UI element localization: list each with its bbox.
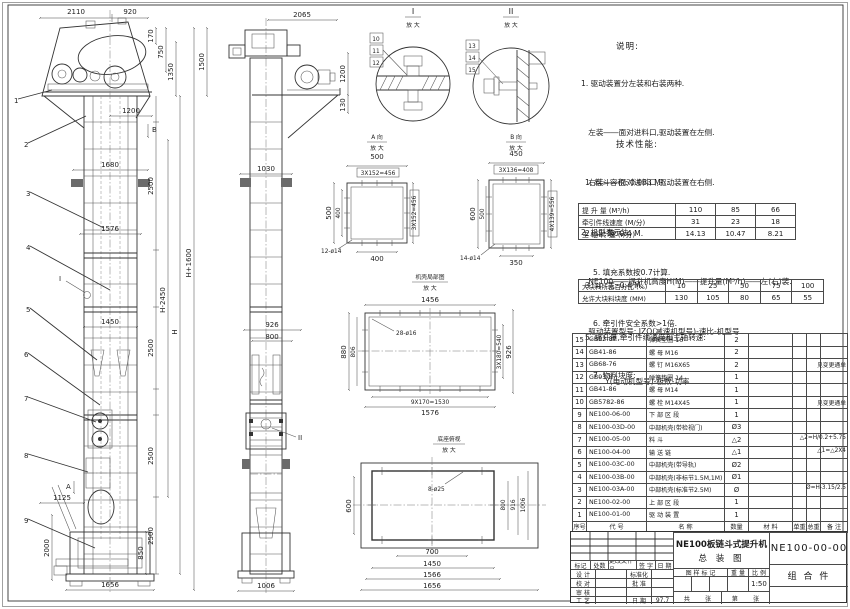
bom-item-unit-weight xyxy=(793,446,807,459)
product-name: NE100板链斗式提升机 xyxy=(676,538,767,550)
side-elevation-view: II 2065 1200 130 1030 926 800 1006 xyxy=(229,11,348,595)
callout-6: 6 xyxy=(24,351,29,359)
view-b-dim-350: 350 xyxy=(509,259,522,267)
bom-item-material xyxy=(749,359,793,372)
base-plan-view: 底座俯视 放 大 8-ø25 600 800 916 1006 700 1450… xyxy=(345,435,546,590)
dim-130: 130 xyxy=(339,98,347,111)
scale-value: 1:50 xyxy=(748,576,769,591)
view-a-enlarged: A 向 放 大 500 3X152=456 500 400 400 3X152=… xyxy=(321,133,419,263)
lump-size-row: 大块料所占百分比 (%) 10 25 50 75 100 xyxy=(579,280,824,292)
bom-item-unit-weight xyxy=(793,484,807,497)
bom-item-qty: 1 xyxy=(725,496,749,509)
bom-item-material xyxy=(749,396,793,409)
capacity-table-row: 牵引件线速度 (M/分) 31 23 18 xyxy=(579,216,796,228)
view-b-enlarged: B 向 放 大 450 3X136=408 600 500 350 4X139=… xyxy=(460,133,557,267)
marker-i-front: I xyxy=(59,275,61,283)
bom-item-code: NE100-03D-00 xyxy=(587,421,647,434)
sig-approve-value xyxy=(651,578,673,587)
bom-item-name: 上 部 区 段 xyxy=(647,496,725,509)
capacity-value-3: 18 xyxy=(756,216,796,228)
bom-item-unit-weight xyxy=(793,334,807,347)
bom-item-code: NE100-05-00 xyxy=(587,434,647,447)
callout-12: 12 xyxy=(372,61,380,67)
lump-value-1: 130 xyxy=(666,292,698,304)
title-block-empty-cell xyxy=(769,586,848,604)
marker-a: A xyxy=(66,483,71,491)
bom-item-qty: 2 xyxy=(725,346,749,359)
lump-value-2: 25 xyxy=(697,280,729,292)
casing-dim-9x170: 9X170=1530 xyxy=(411,400,450,406)
parts-list-row: 11 GB41-86 螺 母 M14 1 xyxy=(573,384,848,397)
callout-7: 7 xyxy=(24,395,28,403)
view-b-dim-4x139: 4X139=556 xyxy=(550,196,556,231)
capacity-value-2: 10.47 xyxy=(716,228,756,240)
dim-2065: 2065 xyxy=(293,11,311,19)
bom-item-unit-weight xyxy=(793,459,807,472)
bom-item-no: 11 xyxy=(573,384,587,397)
bom-item-name: 中部机壳(标准节2.5M) xyxy=(647,484,725,497)
parts-list-row: 13 GB68-76 螺 钉 M16X65 2 见变更通单 xyxy=(573,359,848,372)
sig-standard-value xyxy=(651,569,673,578)
capacity-row-label: 主 轴 转 速 (r/分) xyxy=(579,228,676,240)
sig-audit-label: 审 核 xyxy=(571,587,595,596)
base-view-title: 底座俯视 xyxy=(437,435,460,443)
bom-item-unit-weight xyxy=(793,384,807,397)
capacity-table-row: 主 轴 转 速 (r/分) 14.13 10.47 8.21 xyxy=(579,228,796,240)
revision-rows xyxy=(571,532,673,560)
weight-value xyxy=(727,576,748,591)
revision-grid-lines xyxy=(571,532,673,560)
sheet-total: 共 张 xyxy=(673,591,721,604)
capacity-table-row: 提 升 量 (M³/h) 110 85 66 xyxy=(579,204,796,216)
dim-926-side: 926 xyxy=(265,321,279,329)
bom-item-name: 螺 母 M16 xyxy=(647,346,725,359)
bom-item-code: NE100-06-00 xyxy=(587,409,647,422)
dim-1680: 1680 xyxy=(101,161,119,169)
bom-item-qty: 2 xyxy=(725,334,749,347)
bom-item-no: 14 xyxy=(573,346,587,359)
scale-label: 比 例 xyxy=(748,568,769,576)
bom-item-code: GB93-87 xyxy=(587,371,647,384)
bom-item-qty: △2 xyxy=(725,434,749,447)
bom-item-remark: Ø=H-3.15/2.5 xyxy=(821,484,848,497)
bom-item-total-weight xyxy=(807,384,821,397)
bom-item-unit-weight xyxy=(793,471,807,484)
detail-view-ii: II 放 大 13 14 15 xyxy=(466,7,549,124)
casing-dim-3x180: 3X180=540 xyxy=(497,334,503,369)
sig-check-value xyxy=(595,578,626,587)
bom-item-total-weight xyxy=(807,509,821,522)
base-dim-700: 700 xyxy=(425,548,438,556)
bom-item-qty: Ø xyxy=(725,484,749,497)
parts-list-row: 6 NE100-04-00 输 送 链 △1 △1=△2X4 xyxy=(573,446,848,459)
drawing-title-panel: NE100板链斗式提升机 总 装 图 xyxy=(673,532,769,568)
base-view-subtitle: 放 大 xyxy=(442,446,456,454)
casing-partial-view: 机壳局部图 放 大 1456 880 806 3X180=540 926 9X1… xyxy=(340,273,513,417)
sig-approve-label: 批 准 xyxy=(626,578,651,587)
parts-list-row: 14 GB41-86 螺 母 M16 2 xyxy=(573,346,848,359)
bom-item-no: 9 xyxy=(573,409,587,422)
view-a-dim-3x152-right: 3X152=456 xyxy=(412,195,418,230)
sig-audit-b xyxy=(626,587,651,596)
bom-item-material xyxy=(749,434,793,447)
bom-item-unit-weight xyxy=(793,396,807,409)
callout-3: 3 xyxy=(26,190,30,198)
dim-1656: 1656 xyxy=(101,581,119,589)
view-a-dim-400-bottom: 400 xyxy=(370,255,383,263)
parts-list-row: 4 NE100-03B-00 中部机壳(非标节1.5M,1M) Ø1 xyxy=(573,471,848,484)
bom-item-qty: Ø2 xyxy=(725,459,749,472)
sig-audit-value xyxy=(595,587,626,596)
bom-item-no: 1 xyxy=(573,509,587,522)
bom-item-no: 7 xyxy=(573,434,587,447)
capacity-table-body: 提 升 量 (M³/h) 110 85 66 牵引件线速度 (M/分) 31 2… xyxy=(579,204,796,240)
lump-size-table-body: 大块料所占百分比 (%) 10 25 50 75 100 允许大块料块度 (MM… xyxy=(579,280,824,304)
bom-item-name: 螺 钉 M16X65 xyxy=(647,359,725,372)
casing-holes-label: 28-ø16 xyxy=(396,331,417,337)
bom-item-code: NE100-03C-00 xyxy=(587,459,647,472)
view-a-holes-label: 12-ø14 xyxy=(321,249,342,255)
bom-item-qty: Ø1 xyxy=(725,471,749,484)
bom-item-no: 2 xyxy=(573,496,587,509)
stamp-box-2 xyxy=(691,576,709,591)
bom-item-remark xyxy=(821,459,848,472)
bom-item-name: 下 部 区 段 xyxy=(647,409,725,422)
view-b-holes-label: 14-ø14 xyxy=(460,256,481,262)
bom-item-no: 15 xyxy=(573,334,587,347)
parts-list-header: 序号 代 号 名 称 数量 材 料 单重 总重 备 注 xyxy=(573,521,848,531)
lump-value-3: 50 xyxy=(729,280,761,292)
sheet-number: 第 张 xyxy=(721,591,769,604)
bom-item-total-weight xyxy=(807,471,821,484)
bom-header-remark: 备 注 xyxy=(821,521,848,531)
bom-item-total-weight xyxy=(807,459,821,472)
callout-5: 5 xyxy=(26,306,30,314)
bom-item-unit-weight xyxy=(793,371,807,384)
bom-item-name: 弹簧垫圈 14 xyxy=(647,371,725,384)
sig-date-value: 97.7 xyxy=(651,596,673,604)
bom-item-remark: △2=H/0.2+5.75 xyxy=(821,434,848,447)
sig-standard-label: 标准化 xyxy=(626,569,651,578)
capacity-row-label: 提 升 量 (M³/h) xyxy=(579,204,676,216)
view-b-dim-450: 450 xyxy=(509,150,522,158)
parts-list-row: 7 NE100-05-00 料 斗 △2 △2=H/0.2+5.75 xyxy=(573,434,848,447)
bom-item-qty: 1 xyxy=(725,384,749,397)
callout-2: 2 xyxy=(24,141,28,149)
dim-750: 750 xyxy=(157,45,165,58)
bom-header-no: 序号 xyxy=(573,521,587,531)
stamp-box-1 xyxy=(673,576,691,591)
bom-item-no: 6 xyxy=(573,446,587,459)
dim-2500: 2500 xyxy=(147,447,155,465)
dim-1125: 1125 xyxy=(53,494,71,502)
bom-item-no: 4 xyxy=(573,471,587,484)
view-a-dim-3x152: 3X152=456 xyxy=(361,171,396,177)
bom-item-qty: 1 xyxy=(725,396,749,409)
title-block: 标记 处数 更改文件号 签 字 日 期 设 计 标准化 校 对 批 准 审 核 … xyxy=(570,531,847,603)
bom-item-remark xyxy=(821,384,848,397)
bom-item-remark xyxy=(821,496,848,509)
dim-1450: 1450 xyxy=(101,318,119,326)
bom-item-qty: Ø3 xyxy=(725,421,749,434)
detail-ii-title: II xyxy=(509,7,514,16)
dim-1200-side: 1200 xyxy=(339,65,347,83)
parts-list-row: 2 NE100-02-00 上 部 区 段 1 xyxy=(573,496,848,509)
bom-item-remark: △1=△2X4 xyxy=(821,446,848,459)
view-a-title: A 向 xyxy=(371,133,383,141)
lump-value-5: 55 xyxy=(792,292,824,304)
parts-list-row: 3 NE100-03A-00 中部机壳(标准节2.5M) Ø Ø=H-3.15/… xyxy=(573,484,848,497)
bom-item-remark xyxy=(821,421,848,434)
lump-size-table: 大块料所占百分比 (%) 10 25 50 75 100 允许大块料块度 (MM… xyxy=(578,279,824,304)
bom-item-unit-weight xyxy=(793,496,807,509)
front-elevation-view: 2110 920 170 750 1350 1500 1200 B 1680 1… xyxy=(14,8,207,592)
lump-size-label: 大块料所占百分比 (%) xyxy=(579,280,666,292)
callout-13: 13 xyxy=(468,44,476,50)
bom-item-name: 中部机壳(非标节1.5M,1M) xyxy=(647,471,725,484)
casing-dim-1456: 1456 xyxy=(421,296,439,304)
notes-heading: 说明: xyxy=(616,40,639,52)
bom-item-no: 13 xyxy=(573,359,587,372)
callout-9: 9 xyxy=(24,517,28,525)
dim-2500: 2500 xyxy=(147,527,155,545)
base-dim-916: 916 xyxy=(511,499,517,510)
bom-item-code: GB5782-86 xyxy=(587,396,647,409)
dim-2500: 2500 xyxy=(147,177,155,195)
bom-item-name: 输 送 链 xyxy=(647,446,725,459)
bom-item-unit-weight xyxy=(793,359,807,372)
bom-item-code: GB41-86 xyxy=(587,384,647,397)
bom-header-unit-weight: 单重 xyxy=(793,521,807,531)
callout-10: 10 xyxy=(372,37,380,43)
bom-item-code: NE100-03B-00 xyxy=(587,471,647,484)
parts-list-row: 1 NE100-01-00 驱 动 装 置 1 xyxy=(573,509,848,522)
drawing-name: 总 装 图 xyxy=(698,552,744,564)
view-b-dim-600: 600 xyxy=(469,207,477,220)
bom-item-remark xyxy=(821,509,848,522)
lump-value-2: 105 xyxy=(697,292,729,304)
view-a-dim-500-left: 500 xyxy=(325,206,333,219)
base-dim-1656: 1656 xyxy=(423,582,441,590)
bom-item-qty: 2 xyxy=(725,359,749,372)
lump-value-5: 100 xyxy=(792,280,824,292)
bom-item-name: 弹簧垫圈 16 xyxy=(647,334,725,347)
bom-item-name: 中部机壳(带检视门) xyxy=(647,421,725,434)
detail-ii-subtitle: 放 大 xyxy=(504,21,518,29)
parts-list-table: 15 GB93-87 弹簧垫圈 16 2 14 GB41-86 螺 母 M16 … xyxy=(572,333,848,532)
dim-1200-front: 1200 xyxy=(122,107,140,115)
bom-item-material xyxy=(749,384,793,397)
bom-item-unit-weight xyxy=(793,421,807,434)
bom-item-total-weight xyxy=(807,346,821,359)
lump-size-label: 允许大块料块度 (MM) xyxy=(579,292,666,304)
sig-check-label: 校 对 xyxy=(571,578,595,587)
base-dim-1566: 1566 xyxy=(423,571,441,579)
dim-800-side: 800 xyxy=(265,333,278,341)
bom-item-code: GB68-76 xyxy=(587,359,647,372)
bom-item-material xyxy=(749,484,793,497)
bom-item-remark: 见变更通单 xyxy=(821,359,848,372)
rev-col-doc: 更改文件号 xyxy=(608,560,636,569)
parts-list-row: 5 NE100-03C-00 中部机壳(带导轨) Ø2 xyxy=(573,459,848,472)
base-dim-1006: 1006 xyxy=(521,497,527,512)
bom-item-no: 8 xyxy=(573,421,587,434)
sig-audit-c xyxy=(651,587,673,596)
text-line: 1. 料斗容积: 0.033 M³. xyxy=(585,177,845,190)
parts-list-row: 9 NE100-06-00 下 部 区 段 1 xyxy=(573,409,848,422)
bom-item-no: 5 xyxy=(573,459,587,472)
dim-1030: 1030 xyxy=(257,165,275,173)
base-dim-1450: 1450 xyxy=(423,560,441,568)
bom-item-remark xyxy=(821,346,848,359)
callout-leaders xyxy=(18,90,110,548)
bom-item-name: 料 斗 xyxy=(647,434,725,447)
bom-item-material xyxy=(749,409,793,422)
capacity-value-2: 85 xyxy=(716,204,756,216)
casing-view-subtitle: 放 大 xyxy=(423,284,437,292)
weight-label: 重 量 xyxy=(727,568,748,576)
parts-list-row: 8 NE100-03D-00 中部机壳(带检视门) Ø3 xyxy=(573,421,848,434)
bom-item-total-weight xyxy=(807,421,821,434)
callout-1: 1 xyxy=(14,97,18,105)
lump-value-3: 80 xyxy=(729,292,761,304)
part-type: 组 合 件 xyxy=(769,564,848,586)
bom-item-unit-weight xyxy=(793,509,807,522)
bom-item-material xyxy=(749,334,793,347)
bom-item-no: 12 xyxy=(573,371,587,384)
text-line: 6. 牵引件安全系数>1倍. xyxy=(593,318,845,331)
dim-h-2450: H-2450 xyxy=(159,287,167,313)
view-b-dim-500: 500 xyxy=(480,208,486,219)
rev-col-mark: 标记 xyxy=(571,560,590,569)
bom-item-material xyxy=(749,421,793,434)
bom-item-code: NE100-01-00 xyxy=(587,509,647,522)
rev-col-count: 处数 xyxy=(590,560,608,569)
dim-1006: 1006 xyxy=(257,582,275,590)
callout-8: 8 xyxy=(24,452,28,460)
bom-item-total-weight xyxy=(807,409,821,422)
sig-design-value xyxy=(595,569,626,578)
drawing-number: NE100-00-00 xyxy=(769,532,848,564)
lump-value-4: 65 xyxy=(760,292,792,304)
callout-15: 15 xyxy=(468,68,476,74)
bom-item-material xyxy=(749,371,793,384)
bom-item-qty: 1 xyxy=(725,409,749,422)
dim-h-plus-1600: H+1600 xyxy=(185,249,193,278)
bom-item-material xyxy=(749,496,793,509)
text-line: 1. 驱动装置分左装和右装两种. xyxy=(581,78,845,90)
lump-value-1: 10 xyxy=(666,280,698,292)
callout-14: 14 xyxy=(468,56,476,62)
bom-header-total-weight: 总重 xyxy=(807,521,821,531)
detail-i-title: I xyxy=(412,7,414,16)
bom-item-qty: 1 xyxy=(725,509,749,522)
text-line: 5. 填充系数按0.7计算. xyxy=(593,267,845,280)
capacity-table: 提 升 量 (M³/h) 110 85 66 牵引件线速度 (M/分) 31 2… xyxy=(578,203,796,240)
base-dim-600: 600 xyxy=(345,499,353,512)
dim-2500: 2500 xyxy=(147,339,155,357)
bom-item-remark xyxy=(821,371,848,384)
bom-item-remark xyxy=(821,409,848,422)
bom-item-code: NE100-03A-00 xyxy=(587,484,647,497)
dim-920: 920 xyxy=(123,8,136,16)
sig-process-value xyxy=(595,596,626,604)
casing-view-title: 机壳局部图 xyxy=(416,273,445,281)
bom-header-code: 代 号 xyxy=(587,521,647,531)
capacity-value-1: 14.13 xyxy=(676,228,716,240)
bom-item-total-weight xyxy=(807,371,821,384)
dim-h: H xyxy=(171,329,179,334)
marker-ii-side: II xyxy=(298,434,302,442)
sig-date-label: 日 期 xyxy=(626,596,651,604)
bom-item-remark xyxy=(821,334,848,347)
bom-item-code: NE100-02-00 xyxy=(587,496,647,509)
bom-item-material xyxy=(749,346,793,359)
base-dim-800: 800 xyxy=(501,499,507,510)
parts-list-row: 15 GB93-87 弹簧垫圈 16 2 xyxy=(573,334,848,347)
capacity-row-label: 牵引件线速度 (M/分) xyxy=(579,216,676,228)
callout-4: 4 xyxy=(26,244,31,252)
bom-item-code: GB41-86 xyxy=(587,346,647,359)
engineering-drawing-sheet: 2110 920 170 750 1350 1500 1200 B 1680 1… xyxy=(0,0,850,609)
bom-item-qty: 1 xyxy=(725,371,749,384)
detail-i-subtitle: 放 大 xyxy=(406,21,420,29)
parts-list-row: 10 GB5782-86 螺 栓 M14X45 1 见变更通单 xyxy=(573,396,848,409)
bom-header-name: 名 称 xyxy=(647,521,725,531)
bom-item-name: 螺 栓 M14X45 xyxy=(647,396,725,409)
bom-item-material xyxy=(749,459,793,472)
detail-view-i: I 放 大 10 11 12 xyxy=(370,7,450,121)
casing-dim-880: 880 xyxy=(340,345,348,358)
bom-item-total-weight xyxy=(807,334,821,347)
bom-item-unit-weight xyxy=(793,409,807,422)
capacity-value-2: 23 xyxy=(716,216,756,228)
lump-value-4: 75 xyxy=(760,280,792,292)
rev-col-sign: 签 字 xyxy=(636,560,655,569)
view-a-dim-500-top: 500 xyxy=(370,153,383,161)
base-holes-label: 8-ø25 xyxy=(428,487,445,493)
parts-list-row: 12 GB93-87 弹簧垫圈 14 1 xyxy=(573,371,848,384)
bom-item-name: 驱 动 装 置 xyxy=(647,509,725,522)
dim-1576: 1576 xyxy=(101,225,119,233)
casing-dim-926: 926 xyxy=(505,345,513,359)
stamp-box-3 xyxy=(709,576,727,591)
dim-850: 850 xyxy=(137,546,145,559)
bom-item-no: 10 xyxy=(573,396,587,409)
dim-2000: 2000 xyxy=(43,539,51,557)
bom-item-code: GB93-87 xyxy=(587,334,647,347)
sig-process-label: 工 艺 xyxy=(571,596,595,604)
dim-1350: 1350 xyxy=(167,63,175,81)
bom-item-remark xyxy=(821,471,848,484)
bom-item-name: 中部机壳(带导轨) xyxy=(647,459,725,472)
casing-dim-1576: 1576 xyxy=(421,409,439,417)
capacity-value-3: 66 xyxy=(756,204,796,216)
capacity-value-1: 110 xyxy=(676,204,716,216)
view-a-subtitle: 放 大 xyxy=(370,144,384,152)
dim-1500: 1500 xyxy=(198,53,206,71)
callout-11: 11 xyxy=(372,49,380,55)
bom-header-qty: 数量 xyxy=(725,521,749,531)
lump-size-row: 允许大块料块度 (MM) 130 105 80 65 55 xyxy=(579,292,824,304)
dim-170: 170 xyxy=(147,29,155,42)
bom-item-material xyxy=(749,509,793,522)
tech-heading: 技术性能: xyxy=(616,138,658,150)
bom-item-name: 螺 母 M14 xyxy=(647,384,725,397)
stamp-label: 图 样 标 记 xyxy=(673,568,727,576)
bom-header-material: 材 料 xyxy=(749,521,793,531)
bom-item-no: 3 xyxy=(573,484,587,497)
